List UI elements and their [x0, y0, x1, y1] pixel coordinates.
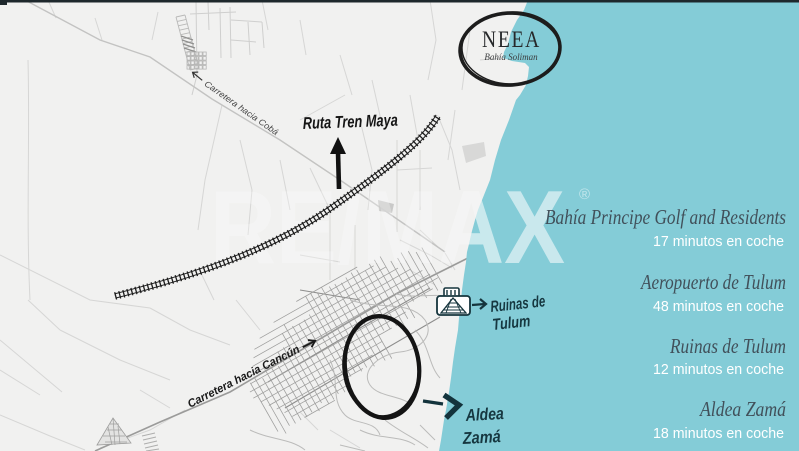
svg-text:Aldea: Aldea [464, 404, 504, 425]
svg-text:®: ® [579, 186, 590, 203]
svg-text:17 minutos en coche: 17 minutos en coche [653, 233, 784, 250]
svg-text:48 minutos en coche: 48 minutos en coche [653, 298, 784, 315]
svg-text:18 minutos en coche: 18 minutos en coche [653, 425, 784, 442]
svg-text:Aldea Zamá: Aldea Zamá [698, 397, 786, 421]
svg-text:Ruinas de Tulum: Ruinas de Tulum [669, 334, 786, 358]
svg-text:Bahía Soliman: Bahía Soliman [484, 52, 538, 62]
svg-text:Bahía Principe Golf and Reside: Bahía Principe Golf and Residents [545, 205, 786, 229]
svg-text:Ruta Tren Maya: Ruta Tren Maya [302, 111, 398, 133]
svg-text:Aeropuerto de Tulum: Aeropuerto de Tulum [639, 270, 786, 294]
svg-text:12 minutos en coche: 12 minutos en coche [653, 361, 784, 378]
svg-text:Zamá: Zamá [461, 427, 501, 448]
svg-text:NEEA: NEEA [482, 27, 541, 52]
